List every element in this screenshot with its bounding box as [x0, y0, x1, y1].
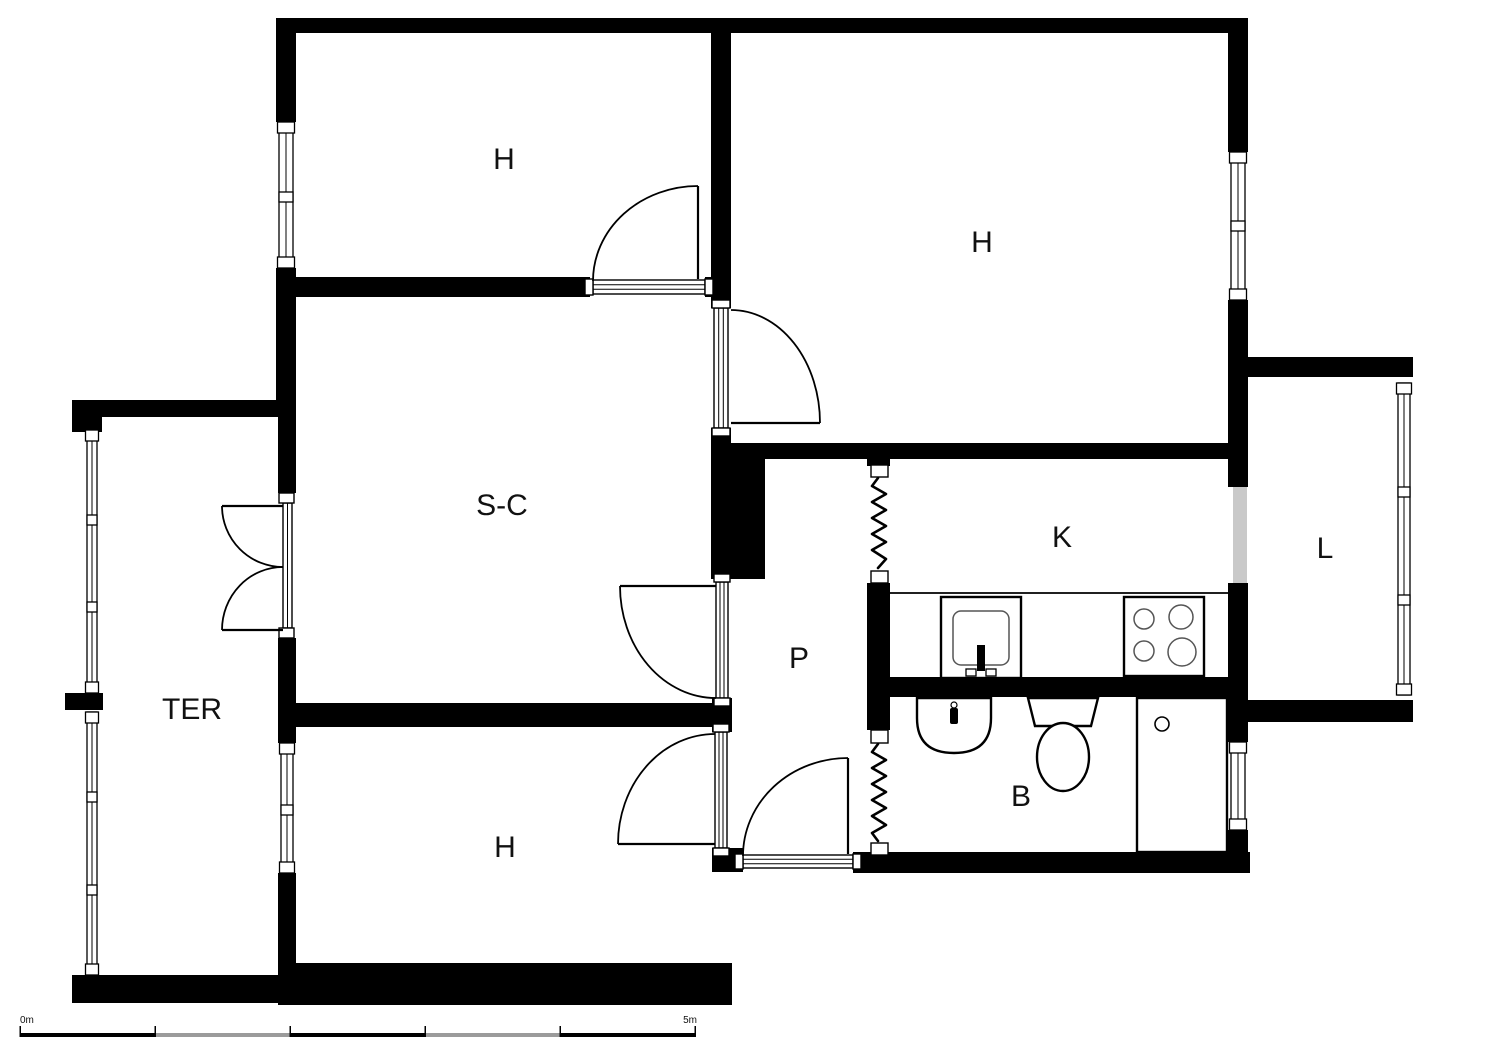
window-terrace-upper — [86, 430, 99, 693]
window-bedroom-top-right — [1230, 152, 1247, 300]
label-bedroom-bottom-left: H — [494, 831, 516, 864]
window-bedroom-top-left — [278, 122, 295, 268]
scale-end-label: 5m — [683, 1015, 697, 1026]
floor-plan-canvas: H H S-C TER K L P B H 0m 5m — [0, 0, 1500, 1061]
folding-door-kitchen-icon — [871, 465, 888, 583]
stove-icon — [1124, 597, 1204, 676]
chimney-block — [711, 443, 765, 579]
window-utility-room — [1397, 383, 1412, 695]
door-bedroom-top-left — [585, 186, 713, 295]
shower-tray-icon — [1137, 698, 1227, 852]
sink-icon — [941, 597, 1021, 678]
toilet-icon — [1028, 698, 1098, 791]
label-terrace: TER — [162, 693, 222, 726]
washbasin-icon — [917, 698, 991, 753]
label-living-dining-room: S-C — [476, 489, 528, 522]
door-entry — [735, 758, 861, 869]
door-living-to-bedroom-top-right — [712, 300, 820, 436]
label-bedroom-top-right: H — [971, 226, 993, 259]
label-bathroom: B — [1011, 780, 1031, 813]
scale-start-label: 0m — [20, 1015, 34, 1026]
window-bedroom-bottom-left — [280, 743, 295, 873]
window-terrace-lower — [86, 712, 99, 975]
scale-bar: 0m 5m — [20, 1015, 698, 1037]
french-door-terrace — [222, 493, 294, 638]
label-bedroom-top-left: H — [493, 143, 515, 176]
floor-plan-drawing: H H S-C TER K L P B H 0m 5m — [0, 0, 1500, 1061]
door-living-to-hall — [620, 574, 730, 706]
label-utility-room: L — [1317, 532, 1334, 565]
door-hall-to-bedroom-bottom — [618, 724, 729, 856]
folding-door-bathroom-icon — [871, 730, 888, 855]
label-hallway: P — [789, 642, 809, 675]
label-kitchen: K — [1052, 521, 1072, 554]
window-bathroom — [1230, 742, 1247, 830]
open-passage-kitchen-utility — [1233, 487, 1247, 583]
